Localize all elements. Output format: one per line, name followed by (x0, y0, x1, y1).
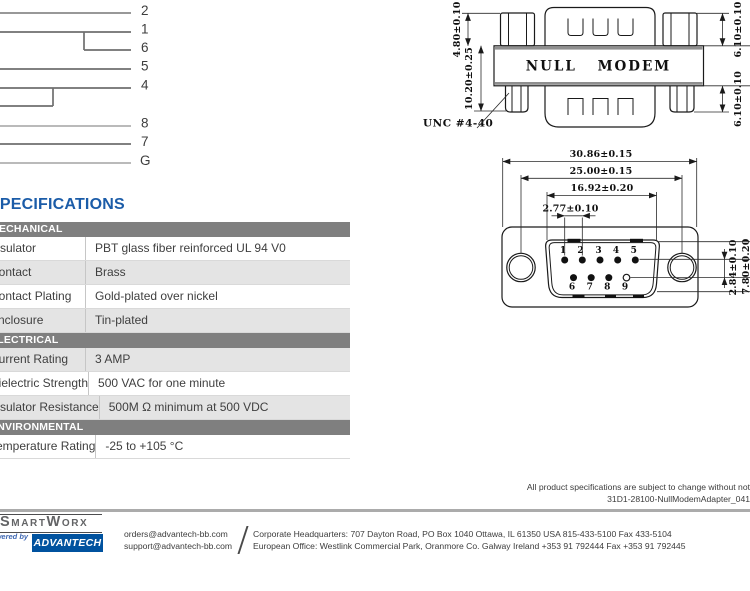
document-number: 31D1-28100-NullModemAdapter_041 (527, 493, 750, 505)
row-label: Contact Plating (0, 285, 86, 308)
dim-right-bottom: 6.10±0.10 (694, 71, 750, 127)
section-header-environmental: ENVIRONMENTAL (0, 420, 350, 435)
datasheet-page: { "wiring": { "labels": ["2", "1", "6", … (0, 0, 750, 591)
row-label: Insulator Resistance (0, 396, 100, 419)
null-modem-wiring-diagram: 2 1 6 5 4 8 7 G (0, 0, 160, 180)
row-label: Current Rating (0, 348, 86, 371)
powered-by-label: Powered by (0, 532, 28, 541)
screw-post-left (506, 86, 529, 112)
row-value: Gold-plated over nickel (86, 285, 218, 308)
pin-label-6: 6 (141, 40, 149, 55)
row-label: Temperature Rating (0, 435, 96, 458)
wiring-pin-labels: 2 1 6 5 4 8 7 G (140, 3, 151, 168)
row-value: Brass (86, 261, 126, 284)
contact-emails: orders@advantech-bb.com support@advantec… (124, 529, 232, 552)
footer-slash-divider (237, 526, 248, 554)
dim-nut-height: 4.80±0.10 (452, 1, 500, 57)
support-email: support@advantech-bb.com (124, 541, 232, 553)
bottom-shell-slots (568, 99, 633, 116)
row-label: Insulator (0, 237, 86, 260)
screw-post-right (670, 86, 694, 112)
pin-number-7: 7 (587, 283, 593, 293)
pin-label-7: 7 (141, 134, 149, 149)
table-row: Enclosure Tin-plated (0, 309, 350, 333)
pin-number-9: 9 (622, 283, 628, 293)
table-row: Temperature Rating -25 to +105 °C (0, 435, 350, 459)
dim-label-10-20: 10.20±0.25 (464, 47, 475, 110)
pin-number-8: 8 (604, 283, 610, 293)
orders-email: orders@advantech-bb.com (124, 529, 232, 541)
disclaimer: All product specifications are subject t… (527, 481, 750, 505)
adapter-body-band: NULL MODEM (494, 46, 704, 86)
top-shell-outline (545, 8, 655, 46)
footer-divider-rule (0, 509, 750, 512)
dim-row-offset: 2.84±0.10 7.80±0.20 (631, 238, 750, 295)
table-row: Contact Brass (0, 261, 350, 285)
adapter-side-view-drawing: NULL MODEM 4.80±0.10 10.20±0.25 UNC #4-4… (420, 0, 750, 137)
office-addresses: Corporate Headquarters: 707 Dayton Road,… (253, 529, 685, 552)
row-label: Contact (0, 261, 86, 284)
dim-label-7-80: 7.80±0.20 (741, 238, 750, 294)
row-label: Dielectric Strength (0, 372, 89, 395)
smartworx-wordmark: SmartWorx (0, 514, 88, 530)
table-row: Current Rating 3 AMP (0, 348, 350, 372)
corporate-headquarters-line: Corporate Headquarters: 707 Dayton Road,… (253, 529, 685, 541)
dim-label-30-86: 30.86±0.15 (570, 149, 633, 160)
dim-label-2-84: 2.84±0.10 (728, 239, 739, 295)
dim-pin-pitch: 2.77±0.10 (542, 204, 598, 256)
advantech-logo: ADVANTECH (32, 534, 103, 552)
pin-row-top: 1 2 3 4 5 (560, 246, 639, 264)
pin-row-bottom: 6 7 8 9 (569, 274, 630, 292)
row-value: 500M Ω minimum at 500 VDC (100, 396, 269, 419)
dim-body-height: 10.20±0.25 (464, 46, 506, 111)
hex-jackscrew-right (663, 13, 697, 46)
top-shell-slots (568, 19, 633, 36)
dim-label-4-80: 4.80±0.10 (452, 1, 463, 57)
table-row: Contact Plating Gold-plated over nickel (0, 285, 350, 309)
row-value: Tin-plated (86, 309, 148, 332)
pin-number-3: 3 (595, 246, 601, 256)
row-value: PBT glass fiber reinforced UL 94 V0 (86, 237, 286, 260)
row-value: -25 to +105 °C (96, 435, 183, 458)
bottom-shell-outline (545, 86, 655, 127)
pin-label-8: 8 (141, 116, 149, 131)
wiring-lines (0, 13, 131, 163)
pin-label-g: G (140, 153, 151, 168)
pin-9-open (623, 274, 630, 281)
pin-label-1: 1 (141, 22, 149, 37)
row-value: 500 VAC for one minute (89, 372, 225, 395)
row-label: Enclosure (0, 309, 86, 332)
specifications-heading: SPECIFICATIONS (0, 196, 125, 214)
body-label: NULL MODEM (526, 59, 671, 75)
mount-hole-left (507, 253, 535, 281)
table-row: Insulator Resistance 500M Ω minimum at 5… (0, 396, 350, 420)
hex-jackscrew-left (501, 13, 535, 46)
table-row: Dielectric Strength 500 VAC for one minu… (0, 372, 350, 396)
pin-number-5: 5 (631, 246, 637, 256)
row-value: 3 AMP (86, 348, 130, 371)
disclaimer-line: All product specifications are subject t… (527, 481, 750, 493)
db9-front-view-drawing: 1 2 3 4 5 6 7 8 9 30.86±0.15 25.00±0.15 … (480, 143, 750, 313)
dim-label-25-00: 25.00±0.15 (570, 166, 633, 177)
pin-number-4: 4 (613, 246, 619, 256)
pin-label-5: 5 (141, 59, 149, 74)
dim-label-16-92: 16.92±0.20 (571, 183, 634, 194)
table-row: Insulator PBT glass fiber reinforced UL … (0, 237, 350, 261)
pin-label-2: 2 (141, 3, 149, 18)
dim-label-6-10-bottom: 6.10±0.10 (733, 71, 744, 127)
dim-right-top: 6.10±0.10 (697, 1, 750, 57)
dim-label-2-77: 2.77±0.10 (542, 204, 598, 215)
dim-label-6-10-top: 6.10±0.10 (733, 1, 744, 57)
european-office-line: European Office: Westlink Commercial Par… (253, 541, 685, 553)
thread-label: UNC #4-40 (423, 118, 493, 130)
specifications-table: MECHANICAL Insulator PBT glass fiber rei… (0, 222, 350, 459)
pin-number-6: 6 (569, 283, 575, 293)
pin-label-4: 4 (141, 78, 149, 93)
section-header-mechanical: MECHANICAL (0, 222, 350, 237)
pin-number-1: 1 (560, 246, 566, 256)
section-header-electrical: ELECTRICAL (0, 333, 350, 348)
